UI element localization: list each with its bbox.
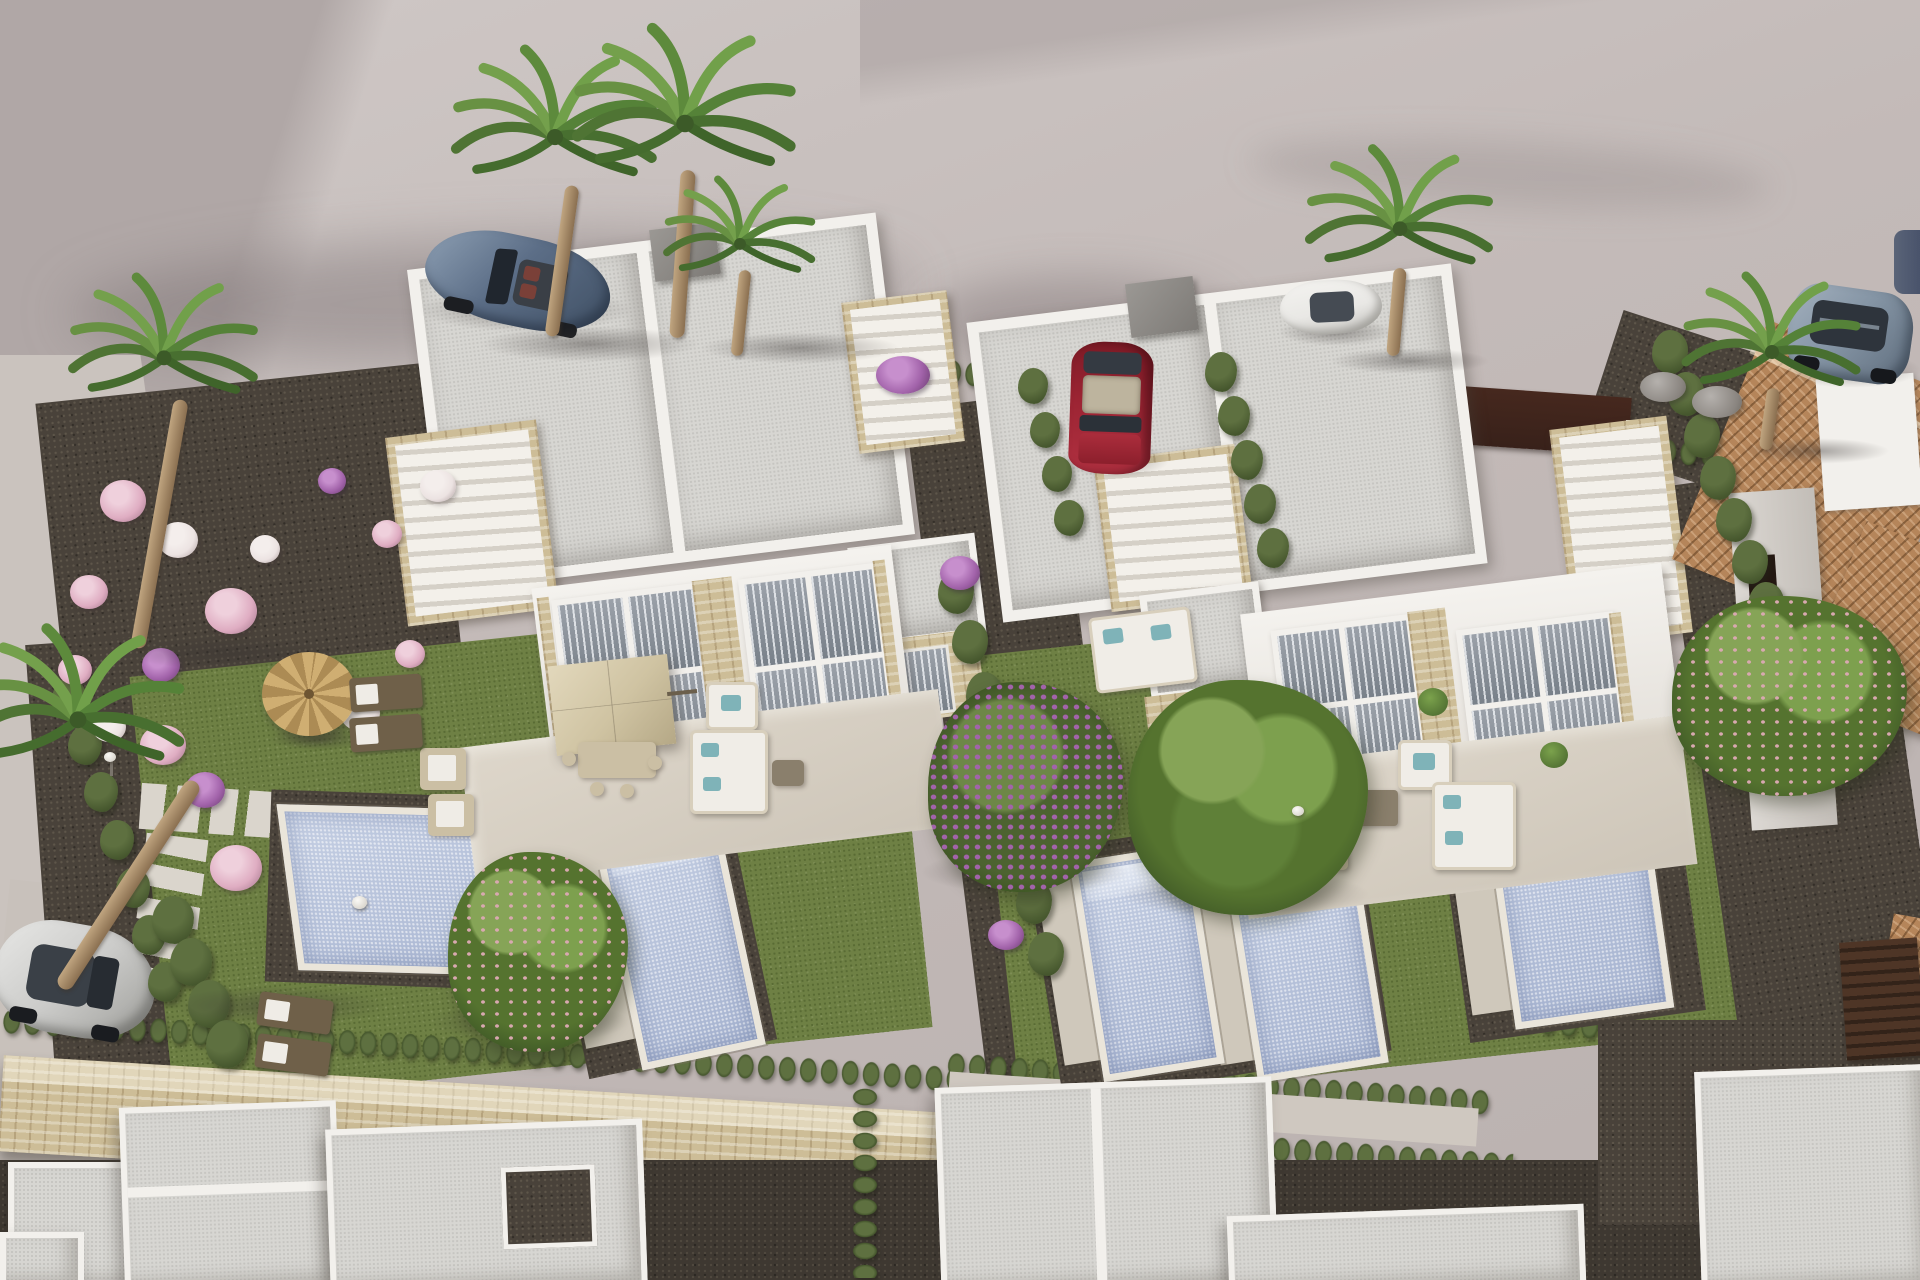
cypress-shrub <box>100 820 134 860</box>
flower-bush <box>205 588 257 634</box>
bougainvillea-tuft <box>988 920 1024 950</box>
dining-chair <box>562 752 576 766</box>
cypress-shrub <box>1231 440 1263 480</box>
lounger-towel <box>355 724 378 745</box>
car-glass <box>1309 291 1355 323</box>
cypress-shrub <box>1732 540 1768 584</box>
foreground-shell-3 <box>325 1119 648 1280</box>
dining-chair <box>620 784 634 798</box>
left-terrace-dining-table <box>578 742 656 778</box>
foreground-shell-5 <box>1227 1204 1587 1280</box>
neighbor-pergola <box>1839 937 1920 1060</box>
cypress-shrub <box>152 896 194 944</box>
window-pane <box>1538 618 1616 696</box>
cypress-shrub <box>1054 500 1084 536</box>
cypress-shrub <box>1700 456 1736 500</box>
window-pane <box>811 569 882 659</box>
umbrella-hub <box>304 689 314 699</box>
right-villa-chimney <box>1125 276 1199 338</box>
garden-light <box>110 760 113 776</box>
palm-shadow <box>700 332 900 364</box>
dark-suv-partial <box>1894 230 1920 294</box>
palm-tree-crown <box>1672 268 1872 408</box>
bougainvillea-tuft <box>940 556 980 590</box>
flower-bush <box>70 575 108 609</box>
cypress-shrub <box>1218 396 1250 436</box>
aerial-development-render <box>0 0 1920 1280</box>
armchair-cushion <box>428 755 456 781</box>
left-villa-stairs-a <box>395 429 549 616</box>
cypress-shrub <box>1257 528 1289 568</box>
window-pane <box>1345 620 1415 699</box>
foreground-shell-6 <box>1694 1064 1920 1280</box>
car-windshield <box>1079 415 1142 433</box>
cypress-shrub <box>1030 412 1060 448</box>
right-terrace-potted-plant-2 <box>1540 742 1568 768</box>
flower-bush <box>318 468 346 494</box>
palm-shadow <box>480 326 700 362</box>
teal-pillow <box>1413 753 1435 770</box>
left-terrace-sofa <box>690 730 768 814</box>
foreground-hedge-vertical <box>838 1086 898 1278</box>
right-terrace-sofa <box>1432 782 1516 870</box>
left-terrace-armchair-2 <box>428 794 474 836</box>
car-cabin-interior <box>1082 375 1141 415</box>
dining-chair <box>590 782 604 796</box>
armchair-cushion <box>436 801 464 827</box>
garden-light-ball <box>1292 806 1304 816</box>
cypress-shrub <box>1684 414 1720 458</box>
right-terrace-potted-plant-1 <box>1418 688 1448 716</box>
palm-tree-crown <box>655 172 825 292</box>
left-terrace-parasol <box>548 654 677 756</box>
garden-light-ball <box>352 896 367 909</box>
flower-bush <box>250 535 280 563</box>
cypress-shrub <box>1018 368 1048 404</box>
cypress-shrub <box>1716 498 1752 542</box>
foreground-shell-1b <box>0 1232 84 1280</box>
teal-pillow <box>1102 627 1124 644</box>
flower-bush <box>395 640 425 668</box>
teal-pillow <box>703 777 721 791</box>
foreground-shell-2 <box>119 1100 342 1280</box>
lounger-towel <box>262 1041 289 1064</box>
window-pane <box>1462 627 1540 705</box>
dining-chair <box>648 756 662 770</box>
shell-4-cross-wall <box>1091 1088 1108 1280</box>
teal-pillow <box>701 743 719 757</box>
lounger-towel <box>355 684 378 705</box>
teal-pillow <box>1445 831 1463 845</box>
cypress-shrub <box>952 620 988 664</box>
left-terrace-armchair-1 <box>420 748 466 790</box>
flower-bush <box>100 480 146 522</box>
flower-bush <box>210 845 262 891</box>
palm-tree-crown <box>0 618 198 788</box>
right-villa-sofa-a <box>1088 606 1199 694</box>
palm-tree-crown <box>560 18 810 194</box>
teal-pillow <box>1150 624 1172 641</box>
palm-shadow <box>1330 348 1490 374</box>
shell-3-courtyard <box>501 1164 598 1249</box>
sun-lounger <box>349 714 423 753</box>
cypress-shrub <box>1244 484 1276 524</box>
flower-bush <box>420 470 456 502</box>
garden-light-head <box>104 752 116 762</box>
palm-tree-crown <box>1295 140 1505 288</box>
flower-bush <box>372 520 402 548</box>
left-terrace-side-table <box>772 760 804 786</box>
sun-lounger <box>349 674 423 713</box>
cypress-shrub <box>1028 932 1064 976</box>
car-seat <box>523 265 542 282</box>
straw-umbrella <box>262 652 356 736</box>
car-seat <box>519 283 538 300</box>
palm-tree-crown <box>58 268 270 418</box>
window-pane <box>745 577 816 667</box>
shell-2-cross-wall <box>128 1180 333 1197</box>
cypress-shrub <box>170 938 212 986</box>
car-hood <box>1078 433 1141 465</box>
teal-pillow <box>1443 795 1461 809</box>
left-terrace-armchair-teal <box>706 682 758 730</box>
lounger-towel <box>264 999 291 1022</box>
cypress-shrub <box>1042 456 1072 492</box>
teal-pillow <box>721 695 741 711</box>
red-hatchback <box>1068 341 1155 476</box>
car-rear-glass <box>1083 351 1142 375</box>
cypress-shrub <box>1205 352 1237 392</box>
cypress-shrub <box>206 1020 248 1068</box>
